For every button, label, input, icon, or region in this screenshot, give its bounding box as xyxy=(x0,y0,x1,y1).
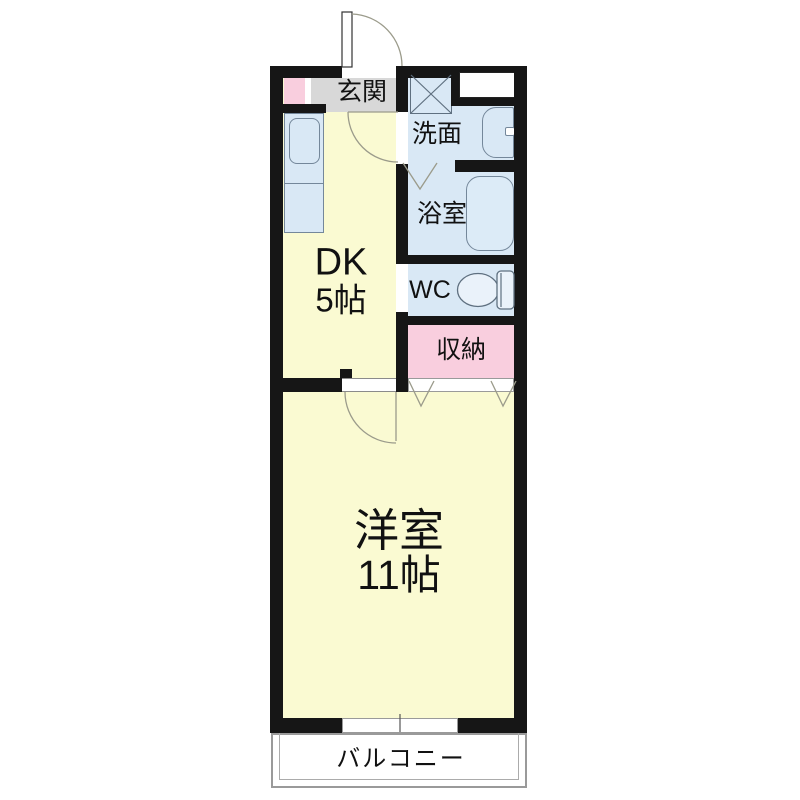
washroom-door-opening xyxy=(396,112,408,164)
wall-bottom-right xyxy=(458,718,527,733)
label-western: 洋室 11帖 xyxy=(354,507,444,597)
wc-door-opening xyxy=(396,264,408,312)
closet-opening xyxy=(408,378,514,392)
wall-dk-bottom xyxy=(270,378,342,392)
washing-machine-pan-icon xyxy=(410,74,452,114)
label-washroom: 洗面 xyxy=(412,121,462,147)
wall-vertical-top xyxy=(396,66,408,112)
wall-bathroom-wc xyxy=(396,255,514,264)
wall-right xyxy=(514,66,527,733)
bathtub-icon xyxy=(466,176,514,251)
genkan-step-wall xyxy=(283,104,326,113)
label-bathroom: 浴室 xyxy=(417,201,467,227)
dk-room-size: 5帖 xyxy=(315,284,368,319)
wall-washroom-bathroom xyxy=(455,160,514,172)
entrance-door-leaf-icon xyxy=(342,12,352,67)
label-wc: WC xyxy=(409,277,451,303)
label-storage: 収納 xyxy=(436,337,486,363)
window-opening xyxy=(342,718,458,733)
kitchen-sink-icon xyxy=(289,118,320,164)
label-balcony: バルコニー xyxy=(336,746,466,771)
floor-plan: 玄関 洗面 浴室 WC 収納 DK 5帖 洋室 11帖 バルコニー xyxy=(0,0,800,800)
wall-vertical-mid xyxy=(396,164,408,264)
shoe-cabinet-edge xyxy=(305,77,311,104)
dk-room-name: DK xyxy=(315,244,368,284)
kitchen-counter-divider xyxy=(284,183,324,184)
entrance-door-swing-arc xyxy=(352,14,402,66)
wall-bottom-left xyxy=(270,718,342,733)
label-dk: DK 5帖 xyxy=(315,244,368,319)
meter-box xyxy=(459,72,517,98)
wall-wc-storage xyxy=(396,316,514,325)
western-room-name: 洋室 xyxy=(354,507,444,554)
shoe-cabinet xyxy=(284,77,305,104)
western-room-size: 11帖 xyxy=(354,554,444,597)
label-genkan: 玄関 xyxy=(337,79,387,105)
wall-left xyxy=(270,66,283,733)
dk-door-opening xyxy=(342,378,396,392)
entrance-opening xyxy=(342,66,396,78)
